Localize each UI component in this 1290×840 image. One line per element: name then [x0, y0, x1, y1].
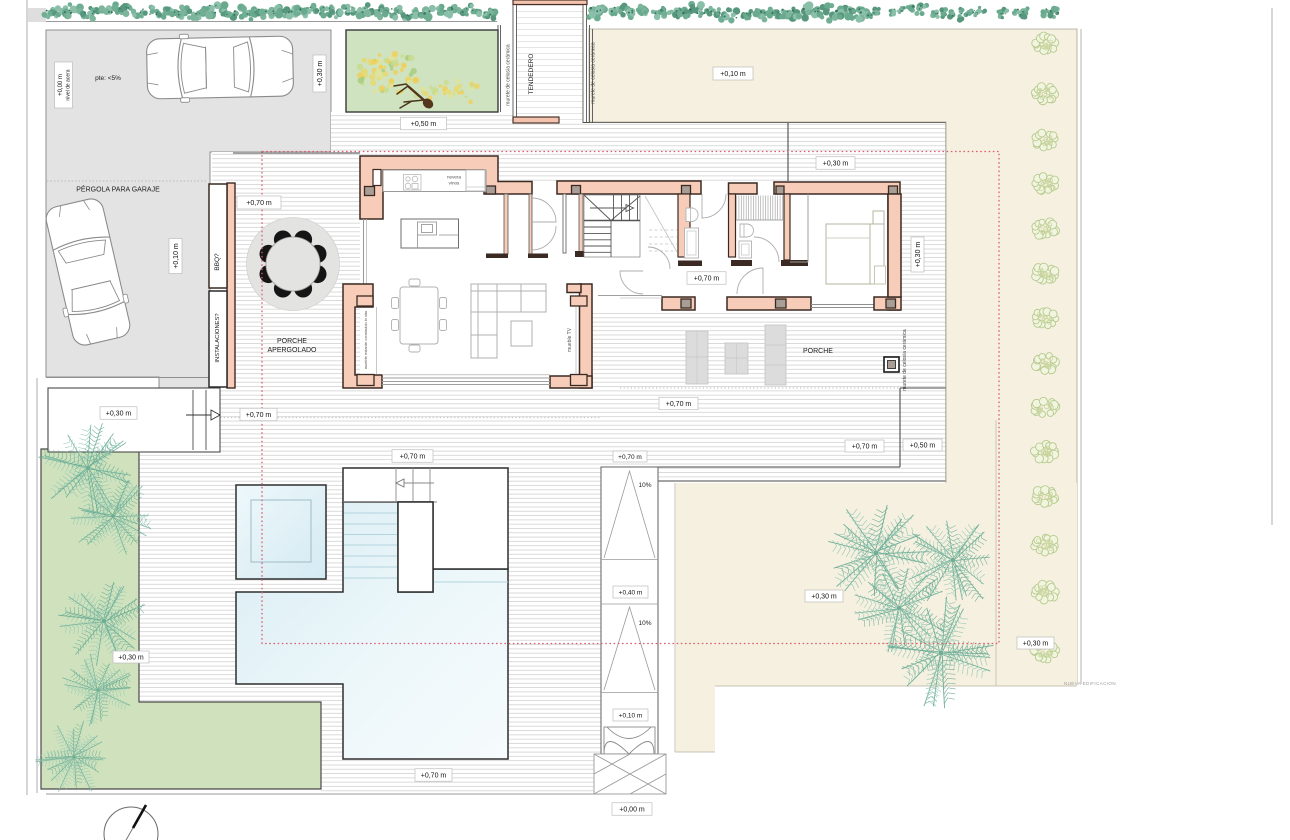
svg-text:+0,50 m: +0,50 m: [411, 121, 437, 128]
svg-text:+0,70 m: +0,70 m: [246, 412, 272, 419]
svg-text:+0,70 m: +0,70 m: [246, 200, 272, 207]
svg-text:TENDEDERO: TENDEDERO: [528, 54, 535, 95]
svg-text:APERGOLADO: APERGOLADO: [267, 347, 317, 354]
svg-text:+0,70 m: +0,70 m: [421, 772, 447, 779]
svg-text:+0,70 m: +0,70 m: [852, 443, 878, 450]
svg-text:pte: <5%: pte: <5%: [95, 75, 121, 82]
svg-text:PORCHE: PORCHE: [277, 338, 307, 345]
svg-text:+0,10 m: +0,10 m: [720, 71, 746, 78]
svg-text:10%: 10%: [638, 620, 651, 627]
svg-text:+0,70 m: +0,70 m: [400, 453, 426, 460]
svg-text:+0,30 m: +0,30 m: [106, 410, 132, 417]
svg-text:+0,30 m: +0,30 m: [823, 160, 849, 167]
svg-text:mueble estante construido in s: mueble estante construido in situ: [363, 311, 368, 369]
svg-text:+0,10 m: +0,10 m: [619, 712, 643, 719]
svg-text:10%: 10%: [638, 482, 651, 489]
svg-text:+0,70 m: +0,70 m: [694, 275, 720, 282]
svg-text:+0,00 m: +0,00 m: [619, 806, 645, 813]
svg-text:PÉRGOLA PARA GARAJE: PÉRGOLA PARA GARAJE: [76, 185, 160, 194]
svg-text:murete de celosía cerámica: murete de celosía cerámica: [902, 329, 908, 391]
svg-text:nivel de acera: nivel de acera: [65, 69, 71, 100]
svg-text:+0,00 m: +0,00 m: [58, 74, 64, 96]
svg-text:+0,70 m: +0,70 m: [666, 401, 692, 408]
svg-text:murete de celosía cerámica: murete de celosía cerámica: [591, 42, 597, 104]
svg-text:nevera: nevera: [447, 175, 461, 180]
svg-text:PORCHE: PORCHE: [803, 348, 833, 355]
svg-text:+0,30 m: +0,30 m: [1023, 640, 1049, 647]
svg-text:+0,30 m: +0,30 m: [118, 654, 144, 661]
svg-text:+0,40 m: +0,40 m: [619, 589, 643, 596]
svg-text:mueble TV: mueble TV: [567, 327, 573, 352]
svg-text:+0,50 m: +0,50 m: [910, 442, 936, 449]
svg-text:BBQ?: BBQ?: [214, 253, 221, 271]
svg-text:+0,70 m: +0,70 m: [618, 454, 642, 461]
svg-text:INSTALACIONES?: INSTALACIONES?: [215, 313, 221, 363]
svg-text:+0,30 m: +0,30 m: [811, 593, 837, 600]
svg-text:+0,10 m: +0,10 m: [173, 243, 180, 269]
svg-text:+0,30 m: +0,30 m: [317, 61, 324, 87]
svg-text:NUEVA EDIFICACION: NUEVA EDIFICACION: [1064, 681, 1116, 686]
svg-text:+0,30 m: +0,30 m: [915, 242, 922, 268]
svg-text:vinos: vinos: [449, 181, 460, 186]
svg-text:murete de celosía cerámica: murete de celosía cerámica: [506, 44, 512, 106]
